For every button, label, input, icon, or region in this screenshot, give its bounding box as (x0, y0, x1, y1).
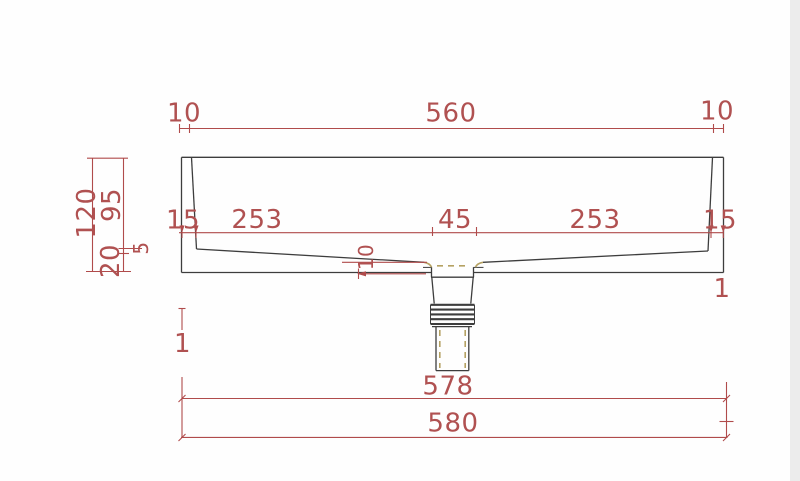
dim-left-basin-depth: 95 (97, 188, 127, 222)
basin-floor-right-slope (483, 251, 708, 262)
dim-interior-right-floor: 253 (569, 205, 620, 235)
dim-interior-drain-width: 45 (438, 205, 472, 235)
dim-bottom-inner-width: 578 (422, 372, 473, 402)
dim-left-offset: 1 (174, 329, 191, 359)
dim-right-offset: 1 (713, 274, 730, 304)
dim-left-base-thickness: 20 (96, 244, 126, 278)
drain-assembly (431, 277, 475, 370)
drain-fillet-right (476, 262, 484, 267)
dim-bottom-overall-width: 580 (427, 409, 478, 439)
dim-interior-right-wall: 15 (703, 206, 737, 236)
dimension-lines (86, 124, 734, 441)
dim-left-lip: 5 (129, 241, 153, 254)
basin-floor-left-slope (197, 249, 425, 262)
dim-interior-left-wall: 15 (166, 206, 200, 236)
technical-drawing-page: 10 560 10 15 253 45 253 15 120 95 20 5 1… (0, 0, 800, 481)
basin-right-wall-inner (708, 158, 713, 252)
dim-top-opening: 560 (425, 99, 476, 129)
dim-top-left-rim: 10 (167, 99, 201, 129)
drain-cup-right (471, 277, 473, 303)
drain-cup-left (432, 277, 434, 303)
drain-thread-ribs (431, 305, 475, 324)
dim-interior-left-floor: 253 (231, 205, 282, 235)
dim-drain-floor-thickness: 10 (354, 244, 378, 270)
drain-fillet-left (424, 262, 432, 267)
dim-top-right-rim: 10 (700, 97, 734, 127)
basin-section-drawing: 10 560 10 15 253 45 253 15 120 95 20 5 1… (0, 0, 800, 481)
